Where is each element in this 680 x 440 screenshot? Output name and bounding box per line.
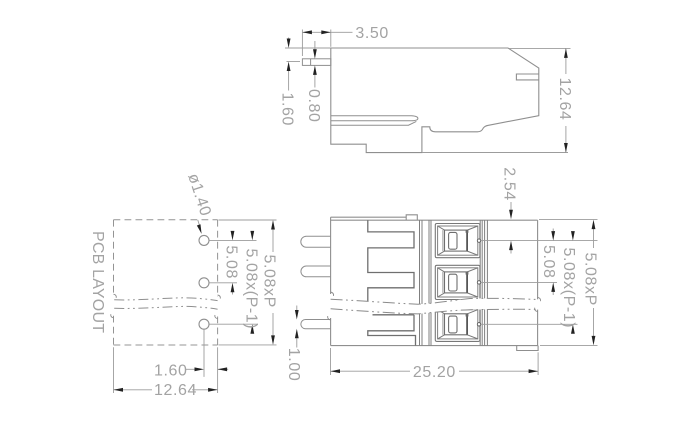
svg-text:5.08: 5.08: [540, 245, 557, 279]
svg-text:2.54: 2.54: [501, 167, 518, 201]
svg-text:5.08xP: 5.08xP: [261, 255, 278, 308]
svg-text:PCB LAYOUT: PCB LAYOUT: [89, 231, 106, 333]
svg-text:ø1.40: ø1.40: [184, 171, 214, 218]
svg-text:5.08xP: 5.08xP: [582, 253, 599, 306]
svg-text:1.60: 1.60: [279, 93, 296, 127]
svg-text:5.08: 5.08: [223, 245, 240, 279]
svg-text:12.64: 12.64: [556, 78, 573, 121]
svg-text:5.08x(P-1): 5.08x(P-1): [560, 248, 577, 329]
svg-text:0.80: 0.80: [305, 89, 322, 123]
svg-text:5.08x(P-1): 5.08x(P-1): [242, 249, 259, 330]
svg-text:25.20: 25.20: [413, 364, 456, 381]
svg-text:1.60: 1.60: [154, 363, 188, 380]
svg-text:12.64: 12.64: [154, 382, 197, 399]
svg-text:3.50: 3.50: [355, 25, 389, 42]
svg-text:1.00: 1.00: [285, 348, 302, 382]
